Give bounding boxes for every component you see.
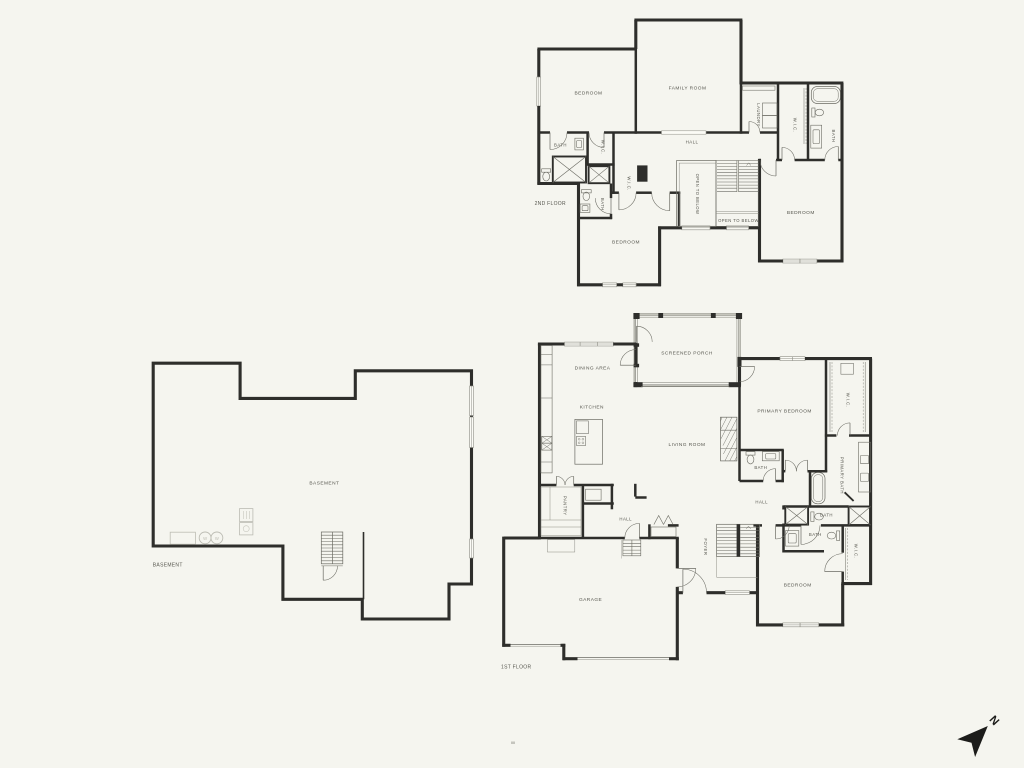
svg-text:W: W — [203, 536, 207, 541]
svg-text:BASEMENT: BASEMENT — [153, 563, 183, 569]
svg-text:BATH: BATH — [809, 532, 822, 537]
svg-text:PANTRY: PANTRY — [563, 496, 568, 516]
svg-text:BEDROOM: BEDROOM — [575, 91, 603, 97]
svg-text:2ND FLOOR: 2ND FLOOR — [535, 201, 566, 207]
svg-text:LAUNDRY: LAUNDRY — [756, 103, 761, 127]
svg-text:FAMILY ROOM: FAMILY ROOM — [669, 86, 707, 92]
svg-text:BATH: BATH — [831, 130, 836, 143]
svg-text:BEDROOM: BEDROOM — [784, 583, 812, 589]
svg-text:BATH: BATH — [600, 198, 605, 211]
svg-text:OPEN TO BELOW: OPEN TO BELOW — [695, 174, 700, 215]
svg-text:W: W — [215, 536, 219, 541]
svg-text:LIVING ROOM: LIVING ROOM — [669, 442, 706, 448]
svg-text:W.I.C.: W.I.C. — [854, 544, 859, 558]
svg-text:GARAGE: GARAGE — [579, 597, 602, 603]
svg-text:BASEMENT: BASEMENT — [309, 480, 339, 486]
svg-text:BEDROOM: BEDROOM — [612, 240, 640, 246]
svg-text:FOYER: FOYER — [703, 538, 708, 555]
svg-text:W.I.C.: W.I.C. — [626, 176, 631, 190]
svg-text:PRIMARY BEDROOM: PRIMARY BEDROOM — [757, 409, 812, 415]
svg-text:HALL: HALL — [619, 517, 632, 522]
svg-text:1ST FLOOR: 1ST FLOOR — [501, 664, 531, 670]
svg-text:BATH: BATH — [820, 512, 833, 517]
svg-text:BATH: BATH — [554, 143, 567, 148]
svg-text:BATH: BATH — [754, 465, 767, 470]
svg-text:KITCHEN: KITCHEN — [580, 404, 604, 410]
svg-text:W.I.C.: W.I.C. — [793, 118, 798, 132]
svg-text:DINING AREA: DINING AREA — [575, 365, 611, 371]
svg-text:BEDROOM: BEDROOM — [787, 210, 815, 216]
svg-text:W.I.C.: W.I.C. — [845, 393, 850, 407]
svg-text:HALL: HALL — [686, 140, 699, 145]
svg-text:SCREENED PORCH: SCREENED PORCH — [661, 350, 713, 356]
svg-text:HALL: HALL — [755, 499, 768, 504]
svg-text:OPEN TO BELOW: OPEN TO BELOW — [718, 218, 759, 223]
svg-text:PRIMARY BATH: PRIMARY BATH — [840, 457, 845, 494]
svg-text:W.I.C.: W.I.C. — [600, 140, 605, 154]
